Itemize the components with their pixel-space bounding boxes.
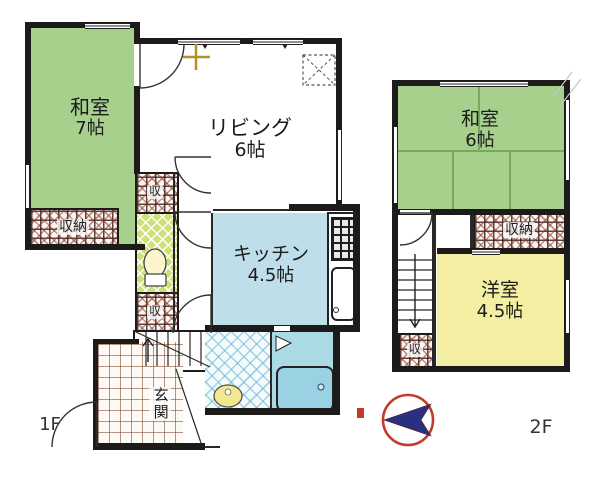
label-storage-lower-1f: 収 [135, 300, 175, 324]
room-name: 収 [407, 343, 423, 357]
room-name: 収 [147, 305, 163, 319]
toilet-icon [144, 249, 166, 286]
label-youshitsu-2f: 洋室 4.5帖 [440, 272, 560, 330]
dashed-equipment-box [303, 55, 335, 85]
room-name: 収納 [503, 222, 535, 238]
compass-north-arrow [357, 395, 433, 445]
door-arc [400, 213, 432, 245]
plus-mark [183, 44, 210, 70]
bathtub-drain [318, 384, 324, 390]
label-storage-2f: 収 [398, 338, 432, 362]
room-size: 6帖 [465, 131, 494, 152]
room-size: 4.5帖 [248, 266, 295, 287]
label-kitchen-1f: キッチン 4.5帖 [216, 236, 326, 294]
bath-door-mark [276, 336, 291, 351]
room-name: 収納 [57, 219, 89, 235]
sink-drain [334, 308, 339, 313]
label-genkan-1f: 玄関 [147, 375, 173, 433]
room-name: 収 [147, 185, 163, 199]
room-name: 玄関 [149, 387, 170, 421]
floor-label-text: 2F [529, 417, 552, 439]
north-mark [357, 408, 364, 418]
label-living-1f: リビング 6帖 [175, 110, 325, 168]
floor-plan: 和室 7帖 リビング 6帖 キッチン 4.5帖 収納 収 収 玄関 和室 6帖 … [0, 0, 600, 482]
washbasin-icon [214, 385, 242, 407]
stairs-arrow-1f [143, 339, 153, 362]
room-name: リビング [208, 116, 292, 140]
room-name: 洋室 [481, 280, 519, 302]
label-washitsu-1f: 和室 7帖 [40, 88, 140, 148]
floor1-label: 1F [28, 412, 72, 438]
room-size: 6帖 [234, 140, 265, 162]
floor2-label: 2F [518, 414, 564, 442]
room-size: 4.5帖 [477, 302, 524, 323]
floor-label-text: 1F [39, 415, 61, 436]
label-washitsu-2f: 和室 6帖 [410, 102, 550, 158]
room-name: 和室 [70, 96, 110, 119]
label-closet-1f: 収納 [34, 216, 112, 238]
window-tick [202, 44, 288, 49]
label-storage-upper-1f: 収 [135, 180, 175, 204]
room-name: キッチン [233, 244, 309, 266]
room-name: 和室 [461, 109, 499, 131]
door-arc [173, 295, 211, 333]
door-arc [175, 212, 211, 248]
door-arc [140, 44, 184, 88]
roof-mark [553, 72, 581, 106]
room-size: 7帖 [75, 119, 104, 140]
label-closet-2f: 収納 [480, 218, 558, 242]
